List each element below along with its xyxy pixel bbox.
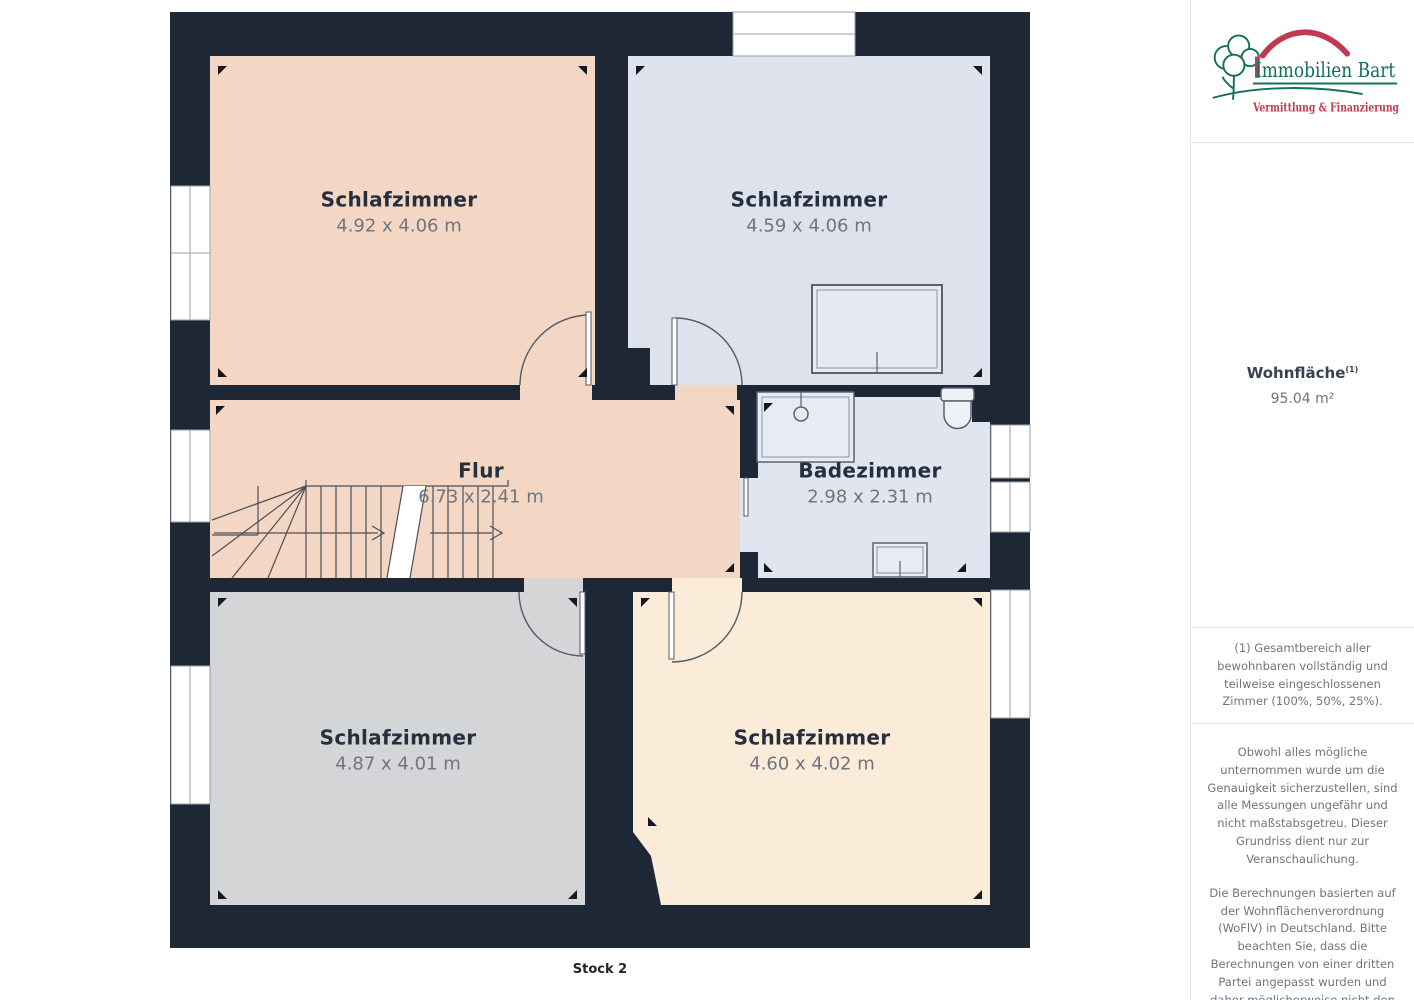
wall-bath-left [740,385,758,478]
living-area-value: 95.04 m² [1271,391,1335,407]
door-threshold [524,578,583,592]
room-bedroom-bottom-left [210,592,585,905]
room-bedroom-top-left [210,56,595,385]
wall-lower-band [742,578,990,592]
door-threshold [740,478,758,552]
footnote-text: (1) Gesamtbereich aller bewohnbaren voll… [1204,640,1401,711]
living-area-label-text: Wohnfläche [1247,364,1346,382]
disclaimer-paragraph: Die Berechnungen basierten auf der Wohnf… [1204,885,1401,1000]
footnote-section: (1) Gesamtbereich aller bewohnbaren voll… [1191,628,1414,724]
floorplan-drawing [0,0,1190,1000]
company-logo: Immobilien Bart Vermittlung & Finanzieru… [1207,17,1399,125]
door-threshold [675,385,737,400]
wall-center-column [595,12,628,400]
disclaimer-section: Obwohl alles mögliche unternommen wurde … [1191,724,1414,1000]
sidebar: Immobilien Bart Vermittlung & Finanzieru… [1190,0,1414,1000]
room-hallway [210,400,740,578]
logo-section: Immobilien Bart Vermittlung & Finanzieru… [1191,0,1414,143]
door-leaf [669,592,674,659]
floorplan-page: Schlafzimmer 4.92 x 4.06 m Schlafzimmer … [0,0,1414,1000]
door-leaf [744,478,748,516]
company-name: Immobilien Bart [1255,58,1395,82]
wall-right [990,12,1030,948]
company-tagline: Vermittlung & Finanzierung [1252,99,1399,114]
living-area-label: Wohnfläche(1) [1247,364,1359,382]
floor-label: Stock 2 [170,962,1030,977]
wall-bath-left [740,552,758,578]
door-leaf [672,318,677,385]
toilet [941,388,974,429]
wall-lower-band [170,578,524,592]
shower [757,392,854,462]
wall-mid [592,385,675,400]
wall-bottom-divider [585,592,633,905]
room-bedroom-bottom-right [633,592,990,905]
wardrobe [812,285,942,373]
sink [873,543,927,577]
door-threshold [672,578,742,592]
wall-lower-band [583,578,672,592]
floorplan-canvas: Schlafzimmer 4.92 x 4.06 m Schlafzimmer … [0,0,1190,1000]
living-area-footnote-marker: (1) [1345,365,1358,374]
door-leaf [580,592,585,654]
door-threshold [520,385,592,400]
living-area-section: Wohnfläche(1) 95.04 m² [1191,143,1414,628]
wall-bottom [170,905,1030,948]
disclaimer-paragraph: Obwohl alles mögliche unternommen wurde … [1204,744,1401,869]
roof-icon [1262,32,1346,55]
logo-swoosh [1212,88,1362,98]
wall-mid [210,385,520,400]
